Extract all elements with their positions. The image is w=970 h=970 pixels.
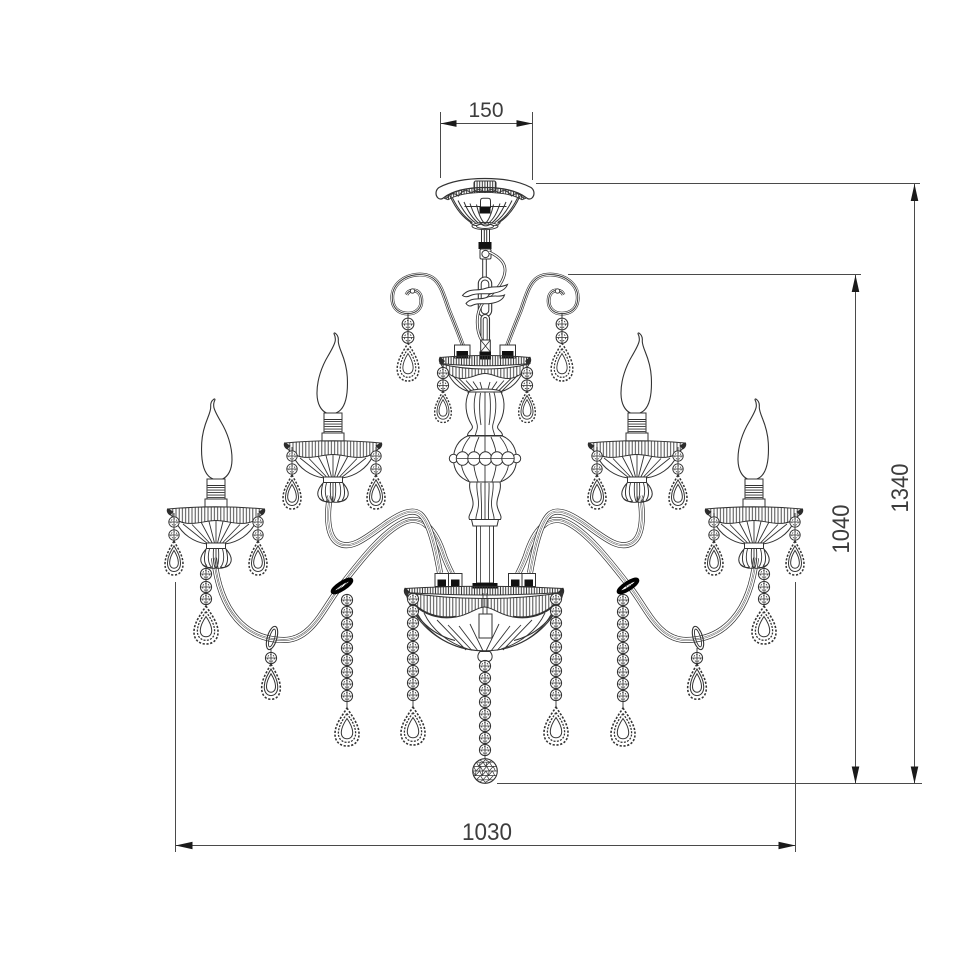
svg-text:150: 150	[468, 99, 503, 122]
svg-text:1030: 1030	[462, 819, 512, 846]
svg-text:1340: 1340	[887, 464, 914, 513]
svg-text:1040: 1040	[828, 505, 855, 554]
